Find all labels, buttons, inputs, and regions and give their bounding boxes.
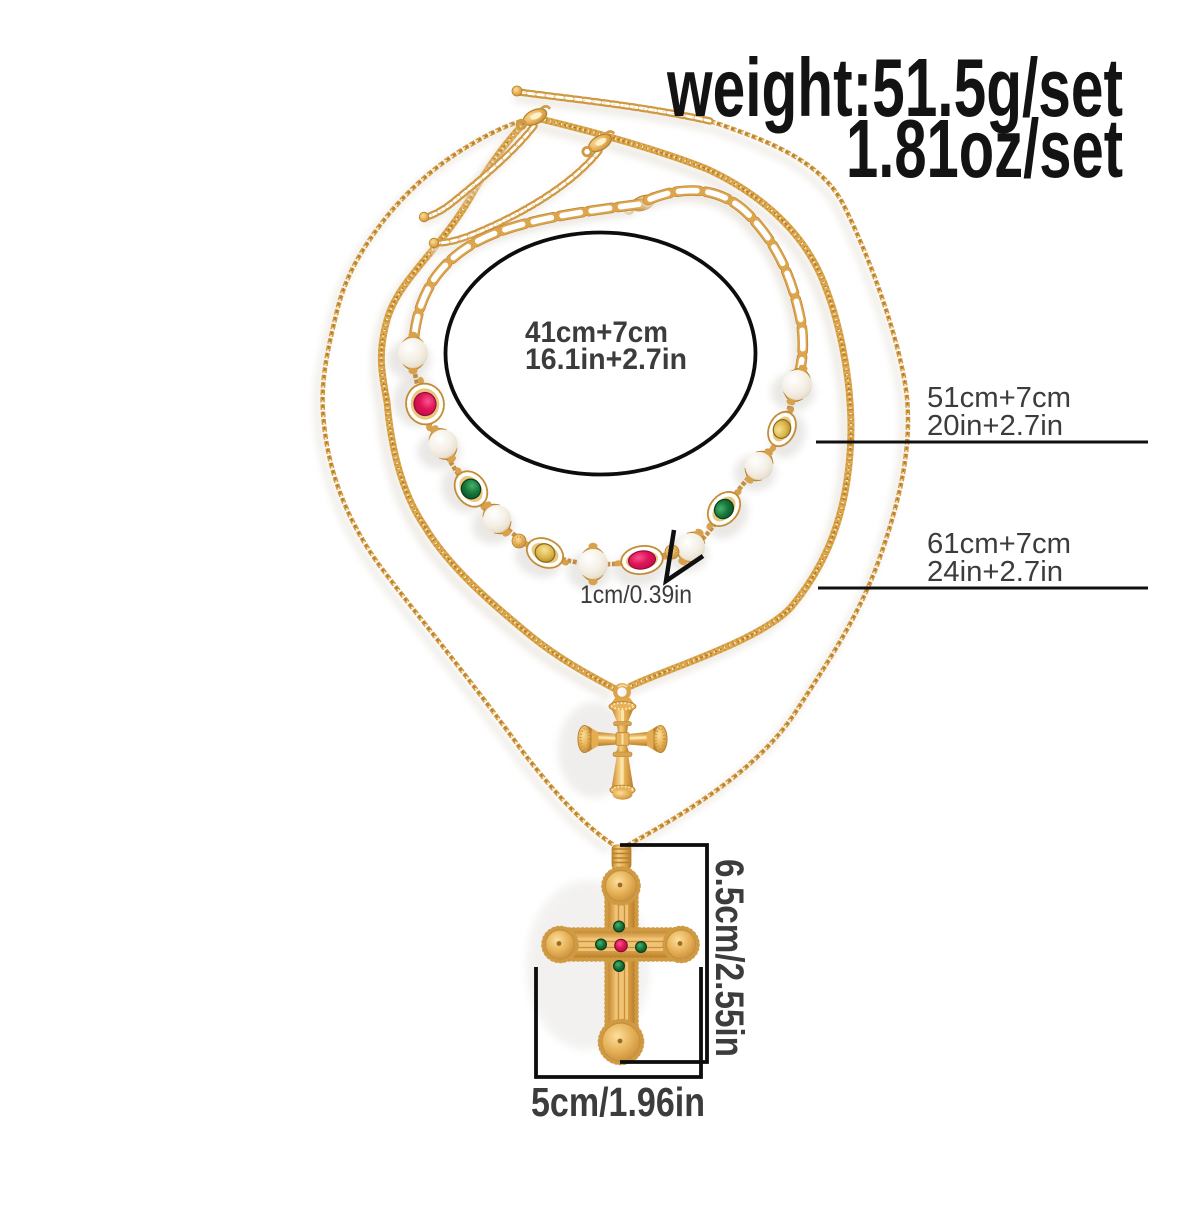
svg-text:6.5cm/2.55in: 6.5cm/2.55in xyxy=(707,859,751,1057)
svg-text:24in+2.7in: 24in+2.7in xyxy=(927,556,1063,588)
svg-text:20in+2.7in: 20in+2.7in xyxy=(927,410,1063,442)
svg-text:1cm/0.39in: 1cm/0.39in xyxy=(580,581,692,609)
svg-text:5cm/1.96in: 5cm/1.96in xyxy=(531,1079,705,1125)
svg-text:16.1in+2.7in: 16.1in+2.7in xyxy=(525,343,687,376)
svg-text:1.81oz/set: 1.81oz/set xyxy=(846,102,1123,195)
